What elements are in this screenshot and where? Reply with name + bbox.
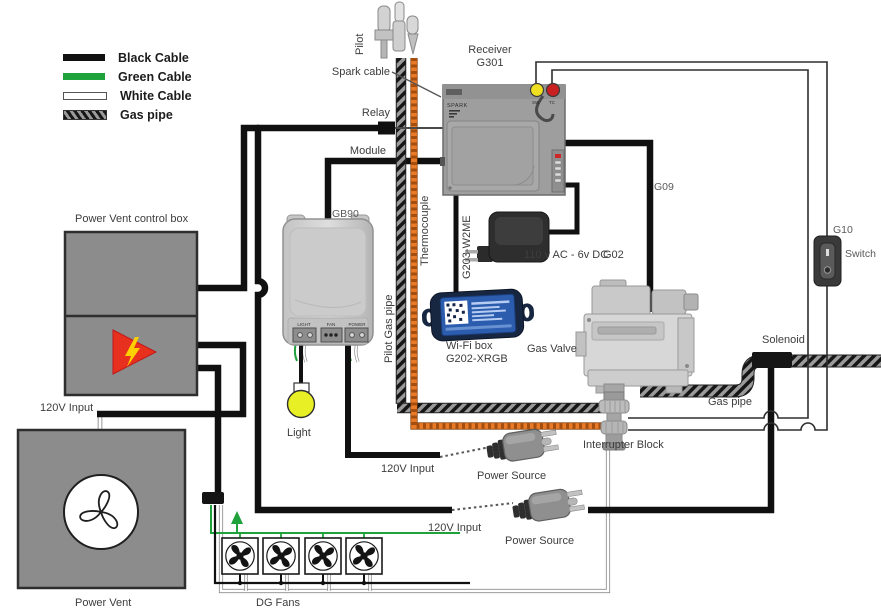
gb90-terminal-light: LIGHT [297, 322, 311, 327]
wifi-label: Wi-Fi box G202-XRGB [446, 340, 508, 366]
legend-label: White Cable [120, 89, 192, 103]
power-plug-a [485, 426, 560, 465]
wiring-diagram: SPARK SW TC LIGHT FAN [0, 0, 881, 616]
receiver-model: G301 [455, 57, 525, 70]
light-bulb [288, 383, 315, 418]
legend-item-green: Green Cable [63, 67, 192, 86]
pilot-assembly [375, 2, 418, 58]
white-cable-swatch [63, 92, 107, 100]
gas-valve-body [576, 280, 698, 395]
fan-icon [222, 538, 258, 574]
gb90-label: GB90 [332, 208, 359, 221]
receiver-sw-label: SW [532, 100, 540, 105]
black-cable-swatch [63, 54, 105, 61]
relay-label: Relay [352, 107, 390, 120]
legend-label: Gas pipe [120, 108, 173, 122]
fan-icon [346, 538, 382, 574]
gb90-terminal-fan: FAN [327, 322, 336, 327]
dg-fans-label: DG Fans [256, 597, 300, 610]
pilot-gas-pipe-label: Pilot Gas pipe [383, 295, 396, 363]
power-source-a-label: Power Source [477, 470, 546, 483]
fan-icon [305, 538, 341, 574]
gas-pipe-label: Gas pipe [708, 396, 752, 409]
g10-switch [814, 236, 841, 286]
power-vent-control-box-label: Power Vent control box [75, 213, 188, 226]
v120-vent-label: 120V Input [40, 402, 93, 415]
gas-valve-label: Gas Valve [527, 343, 577, 356]
spark-cable-label: Spark cable [324, 66, 390, 79]
green-cable-swatch [63, 73, 105, 80]
receiver-tc-label: TC [549, 100, 556, 105]
g09-label: G09 [654, 181, 674, 194]
g10-label: G10 [833, 224, 853, 237]
v120-bottom-label: 120V Input [428, 522, 481, 535]
gb90-module: LIGHT FAN POWER [283, 215, 373, 345]
receiver-label: Receiver G301 [455, 44, 525, 70]
wifi-name: Wi-Fi box [446, 340, 508, 353]
interrupter-label: Interrupter Block [583, 439, 664, 452]
power-source-b-label: Power Source [505, 535, 574, 548]
v120-gb90-label: 120V Input [381, 463, 434, 476]
solenoid-block [752, 352, 792, 368]
power-vent-control-box [65, 232, 197, 395]
legend-label: Green Cable [118, 70, 192, 84]
fan-icon [263, 538, 299, 574]
legend-label: Black Cable [118, 51, 189, 65]
legend-item-gas: Gas pipe [63, 105, 192, 124]
power-plug-b [511, 486, 586, 525]
power-vent-box [18, 430, 185, 588]
power-vent-label: Power Vent [75, 597, 131, 610]
adapter-label: 110 v AC - 6v DC [524, 249, 608, 262]
legend-item-white: White Cable [63, 86, 192, 105]
gas-pipe-swatch [63, 110, 107, 120]
receiver-name: Receiver [455, 44, 525, 57]
gb90-terminal-power: POWER [348, 322, 366, 327]
g203-label: G203-W2ME [461, 215, 474, 279]
wifi-box [421, 288, 535, 342]
wifi-model: G202-XRGB [446, 353, 508, 366]
receiver-spark-text: SPARK [447, 103, 468, 109]
module-label: Module [344, 145, 386, 158]
solenoid-label: Solenoid [762, 334, 805, 347]
g02-label: G02 [603, 249, 624, 262]
switch-label: Switch [845, 248, 876, 261]
pilot-label: Pilot [354, 34, 367, 55]
light-label: Light [287, 427, 311, 440]
thermocouple-label: Thermocouple [419, 196, 432, 266]
receiver-box: SPARK SW TC [440, 84, 565, 196]
dg-fans [222, 538, 382, 574]
legend-item-black: Black Cable [63, 48, 192, 67]
legend: Black Cable Green Cable White Cable Gas … [63, 48, 192, 124]
